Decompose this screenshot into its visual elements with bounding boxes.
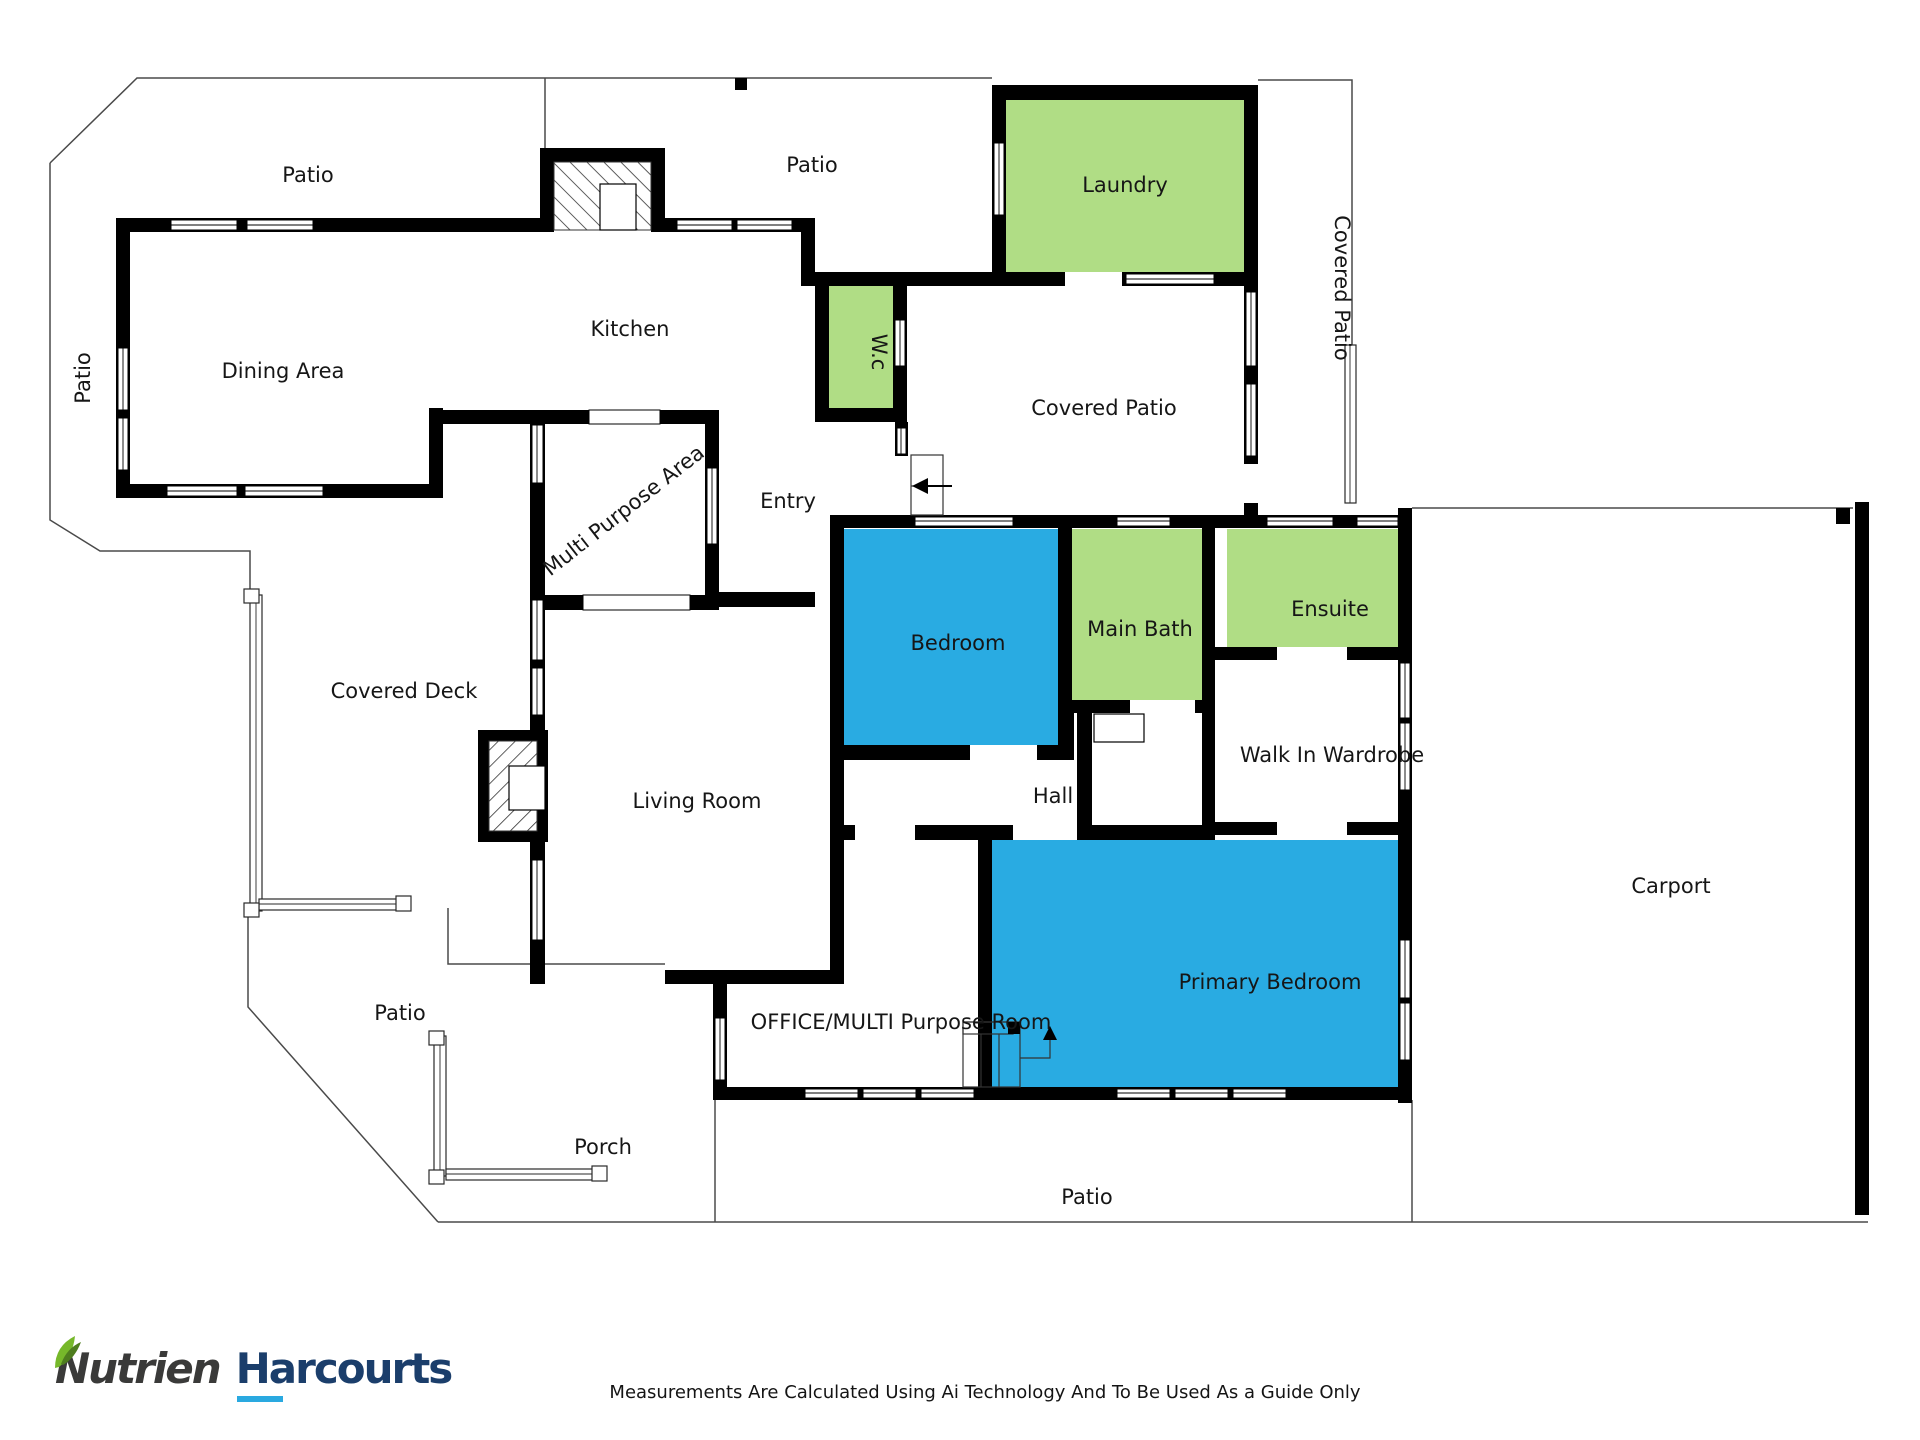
label-living-room: Living Room (633, 789, 762, 813)
label-porch: Porch (574, 1135, 632, 1159)
entry-arrow-icon (912, 478, 928, 494)
chimney (554, 162, 651, 230)
floorplan-drawing: Patio Patio Laundry Covered Patio Patio … (0, 0, 1920, 1440)
label-primary-bedroom: Primary Bedroom (1179, 970, 1362, 994)
label-dining-area: Dining Area (222, 359, 345, 383)
deck-railing (244, 589, 411, 917)
disclaimer-text: Measurements Are Calculated Using Ai Tec… (0, 1382, 1920, 1403)
label-patio-top-mid: Patio (786, 153, 838, 177)
primary-bedroom-fill (992, 840, 1398, 1087)
label-office: OFFICE/MULTI Purpose Room (751, 1010, 1052, 1034)
label-ensuite: Ensuite (1291, 597, 1369, 621)
label-walk-in-wardrobe: Walk In Wardrobe (1240, 743, 1424, 767)
main-bath-door (1094, 714, 1144, 742)
leaf-icon (51, 1334, 93, 1374)
label-patio-left: Patio (71, 352, 95, 404)
side-patio-railing (1345, 345, 1356, 503)
main-bath-fill (1072, 529, 1202, 700)
label-wc: W.c (867, 334, 891, 371)
label-kitchen: Kitchen (591, 317, 670, 341)
porch-railing (429, 1031, 607, 1184)
entry-steps (911, 455, 952, 515)
label-patio-top-left: Patio (282, 163, 334, 187)
floorplan-page: Patio Patio Laundry Covered Patio Patio … (0, 0, 1920, 1440)
label-entry: Entry (760, 489, 816, 513)
label-multi-purpose-area: Multi Purpose Area (539, 440, 709, 580)
label-laundry: Laundry (1082, 173, 1168, 197)
fireplace (478, 730, 548, 842)
label-patio-bottom-left: Patio (374, 1001, 426, 1025)
label-bedroom: Bedroom (911, 631, 1006, 655)
label-covered-deck: Covered Deck (331, 679, 479, 703)
label-main-bath: Main Bath (1087, 617, 1193, 641)
label-patio-bottom: Patio (1061, 1185, 1113, 1209)
patio-post (735, 78, 747, 90)
label-covered-patio: Covered Patio (1031, 396, 1176, 420)
carport-post (1836, 508, 1850, 524)
ensuite-fill (1227, 529, 1398, 647)
label-covered-patio-side: Covered Patio (1330, 215, 1354, 360)
label-carport: Carport (1631, 874, 1710, 898)
room-fills (829, 100, 1398, 1087)
label-hall: Hall (1033, 784, 1073, 808)
